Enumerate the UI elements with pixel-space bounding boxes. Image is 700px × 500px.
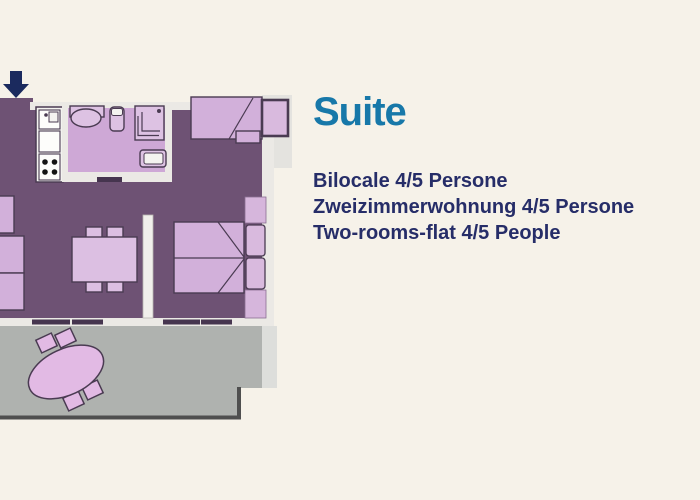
entrance-arrow-icon	[3, 71, 29, 98]
sofa-bed-pillow	[262, 100, 288, 136]
kitchen-stove	[39, 154, 60, 180]
description: Bilocale 4/5 Persone Zweizimmerwohnung 4…	[313, 168, 634, 246]
floorplan	[0, 70, 300, 430]
bathroom-sink	[71, 109, 101, 127]
armchair	[0, 196, 14, 233]
bed-pillow	[246, 225, 265, 256]
bathroom-door	[97, 177, 122, 182]
bidet-basin	[144, 153, 163, 164]
kitchen-unit	[36, 107, 63, 182]
description-line-italian: Bilocale 4/5 Persone	[313, 168, 634, 194]
wardrobe	[245, 290, 266, 318]
kitchen-worktop	[39, 131, 60, 152]
dining-table	[72, 237, 137, 282]
description-line-german: Zweizimmerwohnung 4/5 Persone	[313, 194, 634, 220]
kitchen-sink-basin	[49, 112, 58, 122]
bed-pillow	[246, 258, 265, 289]
sofa-bed-step	[236, 131, 260, 143]
toilet-cistern	[112, 109, 123, 116]
sofa-cushion	[0, 273, 24, 310]
terrace-door	[32, 320, 70, 325]
terrace-right-wall	[262, 326, 277, 388]
terrace-door	[201, 320, 232, 325]
divider-wall	[143, 215, 153, 318]
stove-burner	[52, 169, 58, 175]
terrace-door	[72, 320, 103, 325]
shower-head	[157, 109, 161, 113]
bathroom	[62, 102, 172, 182]
sofa-bed	[191, 97, 288, 143]
sofa-cushion	[0, 236, 24, 273]
stove-burner	[42, 169, 48, 175]
stove-burner	[52, 159, 58, 165]
page: Suite Bilocale 4/5 Persone Zweizimmerwoh…	[0, 0, 700, 500]
page-title: Suite	[313, 90, 406, 134]
description-line-english: Two-rooms-flat 4/5 People	[313, 220, 634, 246]
kitchen-tap	[44, 113, 48, 117]
stove-burner	[42, 159, 48, 165]
terrace-door	[163, 320, 200, 325]
wardrobe	[245, 197, 266, 223]
